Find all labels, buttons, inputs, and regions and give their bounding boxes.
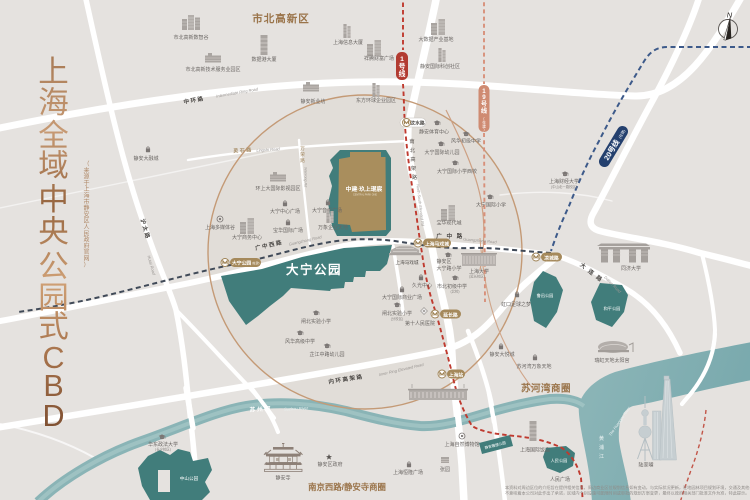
svg-text:上海恒隆广场: 上海恒隆广场 (393, 469, 423, 476)
svg-text:中建·玖上琨宸: 中建·玖上琨宸 (346, 185, 383, 193)
svg-text:市北高新技术服务业园区: 市北高新技术服务业园区 (185, 66, 240, 73)
svg-text:大宁公园: 大宁公园 (286, 262, 342, 277)
svg-text:同济大学: 同济大学 (621, 265, 641, 272)
svg-text:Wanrong Rd: Wanrong Rd (304, 167, 308, 188)
svg-text:(中山北一路校区): (中山北一路校区) (551, 184, 577, 189)
svg-text:大宁国际幼儿园: 大宁国际幼儿园 (424, 149, 459, 156)
svg-text:(在建): (在建) (252, 261, 260, 265)
svg-text:(延长校区): (延长校区) (469, 274, 485, 279)
svg-text:鲁迅公园: 鲁迅公园 (537, 292, 554, 299)
svg-text:环上大国际影视园区: 环上大国际影视园区 (255, 185, 300, 192)
svg-text:虹口足球之梦: 虹口足球之梦 (501, 301, 531, 308)
svg-text:本资料对周边区位的介绍旨在提供相关信息，周边商业区位规划信息: 本资料对周边区位的介绍旨在提供相关信息，周边商业区位规划信息如有变动，与实际状况… (505, 484, 750, 490)
svg-text:黄浦江: 黄浦江 (599, 435, 604, 460)
svg-text:南京西路/静安寺商圈: 南京西路/静安寺商圈 (308, 482, 386, 492)
svg-text:CENTRAL PARK ONE: CENTRAL PARK ONE (353, 194, 377, 197)
svg-text:上海信息大厦: 上海信息大厦 (333, 39, 363, 46)
svg-text:凉城路: 凉城路 (544, 254, 559, 261)
svg-text:上海马戏城: 上海马戏城 (396, 259, 419, 266)
svg-text:大数据产业基地: 大数据产业基地 (418, 36, 453, 43)
svg-text:静安体育中心: 静安体育中心 (419, 129, 449, 136)
svg-text:久光中心: 久光中心 (412, 282, 432, 289)
svg-text:张园: 张园 (440, 466, 450, 473)
svg-text:宝华现代城: 宝华现代城 (436, 220, 461, 227)
svg-text:广 中 路: 广 中 路 (436, 232, 463, 240)
svg-text:上海马戏城: 上海马戏城 (425, 240, 449, 247)
svg-text:大宁国际小学: 大宁国际小学 (476, 202, 506, 209)
svg-text:闸北实验小学: 闸北实验小学 (301, 318, 331, 325)
svg-text:风华高级中学: 风华高级中学 (285, 338, 315, 345)
svg-text:和平公园: 和平公园 (604, 305, 621, 312)
svg-text:静安区政府: 静安区政府 (317, 461, 342, 468)
svg-text:（来源于上海市静安区人民政府官网）: （来源于上海市静安区人民政府官网） (83, 161, 89, 269)
svg-text:宝华国际广场: 宝华国际广场 (273, 227, 303, 234)
svg-text:万荣路: 万荣路 (300, 146, 305, 164)
svg-text:(分校区): (分校区) (391, 316, 403, 321)
svg-text:上海国际饭店: 上海国际饭店 (520, 447, 550, 454)
svg-text:静安大悦城: 静安大悦城 (489, 351, 514, 358)
svg-text:苏河湾万象天地: 苏河湾万象天地 (516, 363, 551, 370)
svg-text:不意味着本公司对此作出了承诺，区域内个别设施可能随时间或审批: 不意味着本公司对此作出了承诺，区域内个别设施可能随时间或审批的规划方案变更，最终… (505, 490, 749, 496)
svg-text:芷江中路幼儿园: 芷江中路幼儿园 (309, 351, 344, 358)
svg-text:市北高新数智谷: 市北高新数智谷 (173, 34, 208, 41)
svg-text:大宁国际商业广场: 大宁国际商业广场 (382, 294, 422, 301)
svg-text:(北校): (北校) (450, 289, 459, 294)
svg-text:万象企业天地: 万象企业天地 (318, 224, 348, 231)
svg-text:中山公园: 中山公园 (180, 475, 199, 482)
svg-text:大宁中心广场: 大宁中心广场 (270, 208, 300, 215)
svg-text:延长路: 延长路 (442, 311, 458, 318)
svg-text:人民广场: 人民广场 (550, 476, 570, 483)
svg-text:(长宁校区): (长宁校区) (155, 447, 171, 452)
svg-text:风华初级中学: 风华初级中学 (451, 138, 481, 145)
svg-text:N: N (727, 11, 733, 20)
svg-text:静安区: 静安区 (436, 258, 451, 265)
svg-text:第十人民医院: 第十人民医院 (405, 320, 435, 327)
svg-text:苏河湾商圈: 苏河湾商圈 (521, 383, 571, 395)
svg-text:瑞虹天地太阳宫: 瑞虹天地太阳宫 (594, 357, 629, 364)
svg-text:静安大融城: 静安大融城 (133, 155, 158, 162)
svg-text:上海站: 上海站 (449, 371, 464, 378)
svg-text:灵石路: 灵石路 (233, 146, 253, 154)
svg-text:数据港大厦: 数据港大厦 (251, 56, 276, 63)
svg-text:闸北实验小学: 闸北实验小学 (382, 310, 412, 317)
svg-text:祥腾财富广场: 祥腾财富广场 (364, 55, 394, 62)
svg-text:静安国际科创社区: 静安国际科创社区 (420, 63, 460, 70)
svg-text:静安新业坊: 静安新业坊 (300, 98, 325, 105)
svg-text:静安寺: 静安寺 (275, 475, 290, 482)
svg-text:市北高新区: 市北高新区 (252, 12, 310, 25)
svg-text:大宁国际小学西校: 大宁国际小学西校 (437, 168, 477, 175)
svg-text:上海自然博物馆: 上海自然博物馆 (444, 441, 479, 448)
svg-text:大宁路小学: 大宁路小学 (436, 265, 461, 272)
svg-text:汶水路: 汶水路 (410, 120, 425, 127)
svg-text:大宁公园: 大宁公园 (232, 259, 251, 266)
svg-text:大宁商务中心: 大宁商务中心 (232, 234, 262, 241)
svg-text:东方环球企业园区: 东方环球企业园区 (356, 97, 396, 104)
svg-text:上海财经大学: 上海财经大学 (549, 178, 579, 185)
svg-text:上海多媒体谷: 上海多媒体谷 (205, 224, 235, 231)
svg-text:陆家嘴: 陆家嘴 (638, 462, 653, 469)
